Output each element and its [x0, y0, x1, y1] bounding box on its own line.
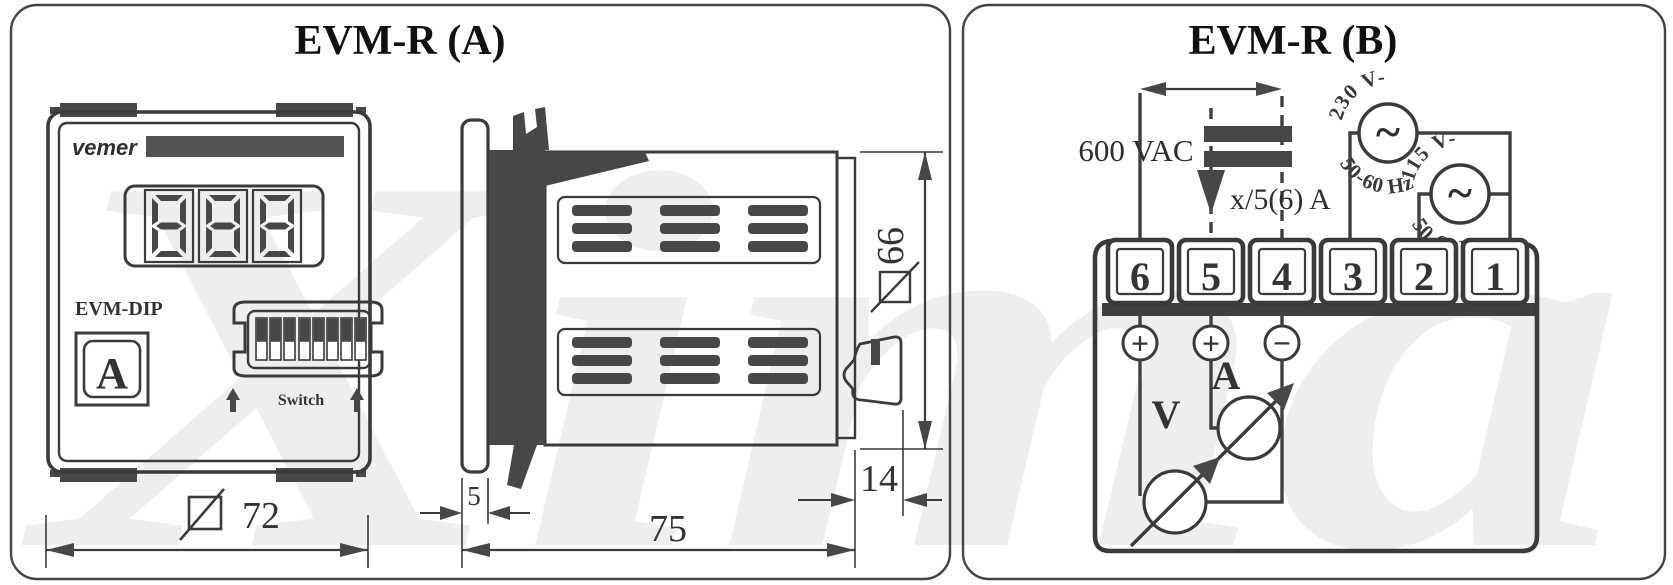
current-input-label: x/5(6) A: [1230, 183, 1331, 216]
mount-tab-bottom-right: [276, 468, 353, 482]
datasheet-page: Xima EVM-R (A) vemer EVM-DIP A Switch: [0, 0, 1673, 585]
function-button-label: A: [96, 349, 128, 398]
voltage-input-label: 600 VAC: [1078, 133, 1193, 168]
dim-14: 14: [860, 458, 898, 500]
terminal-6: 6: [1130, 254, 1150, 299]
ct-bar-top: [1204, 126, 1292, 142]
minus-mark: −: [1273, 325, 1291, 361]
label-strip: [146, 136, 344, 157]
dim-66: 66: [870, 227, 912, 265]
ct-bar-bottom: [1204, 151, 1292, 167]
mounting-clip-body: [489, 150, 545, 445]
ac-tilde-icon: ~: [1376, 106, 1400, 157]
ac-tilde-icon: ~: [1448, 167, 1472, 218]
model-label: EVM-DIP: [75, 298, 163, 320]
mount-tab-top-left: [60, 103, 137, 117]
terminal-4: 4: [1272, 254, 1292, 299]
mount-tab-top-right: [276, 103, 353, 117]
dim-75: 75: [649, 508, 687, 550]
voltmeter-label: V: [1152, 392, 1181, 437]
mount-tab-bottom-left: [60, 468, 137, 482]
terminal-5: 5: [1201, 254, 1221, 299]
panel-a-title: EVM-R (A): [294, 18, 505, 64]
panel-b-title: EVM-R (B): [1189, 18, 1398, 64]
terminal-3: 3: [1343, 254, 1363, 299]
dip-switch-label: Switch: [278, 392, 324, 409]
ammeter-label: A: [1212, 353, 1241, 398]
dim-5: 5: [467, 481, 481, 511]
drawing-canvas: Xima EVM-R (A) vemer EVM-DIP A Switch: [0, 0, 1673, 585]
dim-72: 72: [242, 495, 280, 537]
terminal-2: 2: [1414, 254, 1434, 299]
latch-detail: [871, 339, 880, 365]
terminal-1: 1: [1485, 254, 1505, 299]
brand-logo: vemer: [72, 135, 138, 160]
plus-mark: +: [1131, 325, 1149, 361]
